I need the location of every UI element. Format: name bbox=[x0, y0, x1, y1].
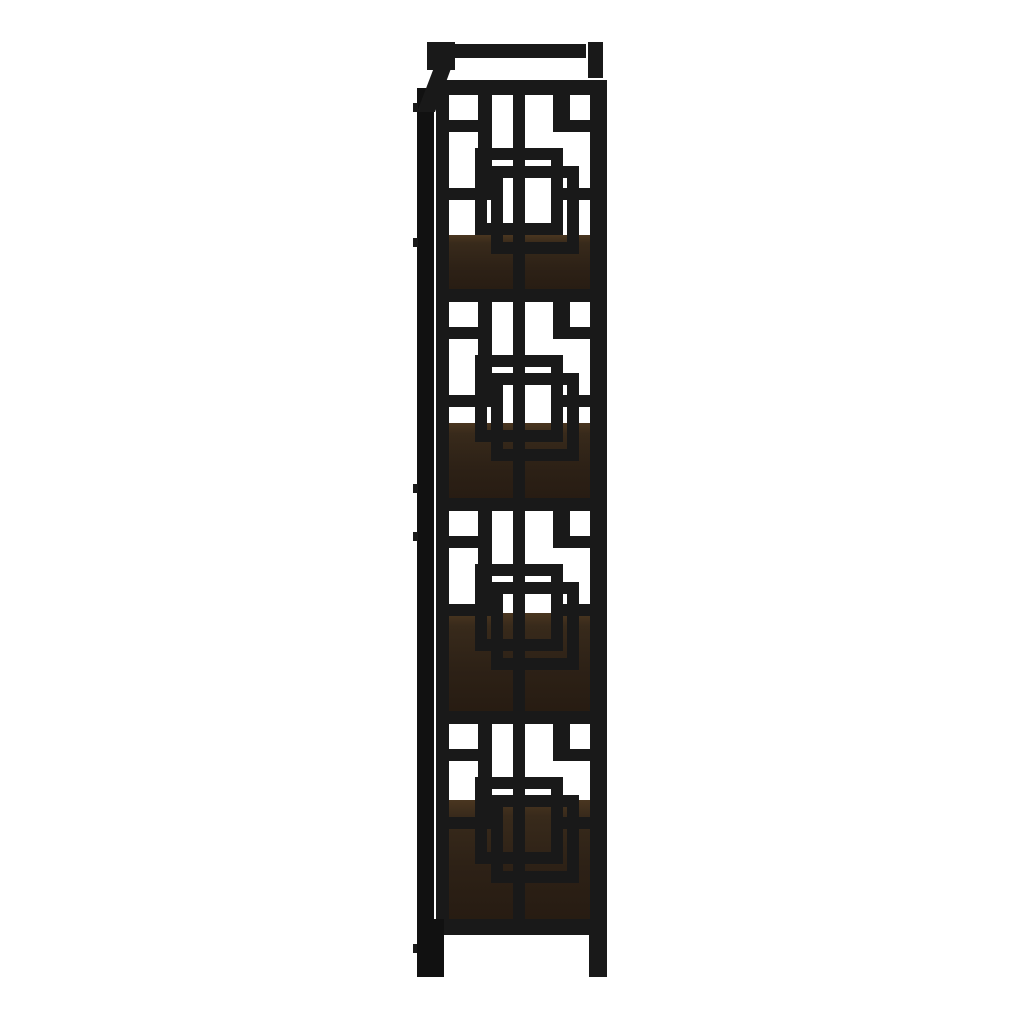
product-photo-canvas bbox=[0, 0, 1024, 1024]
top-right-end-cap bbox=[588, 42, 603, 78]
panel-bottom-rail bbox=[436, 919, 606, 935]
section-rail-1 bbox=[436, 289, 606, 302]
shelf-peg bbox=[413, 238, 418, 247]
shelf-peg bbox=[413, 484, 418, 493]
section-rail-3 bbox=[436, 711, 606, 724]
top-rail bbox=[437, 44, 586, 58]
shelf-peg bbox=[413, 532, 418, 541]
front-leg bbox=[589, 919, 607, 977]
bookcase-product-image bbox=[0, 0, 1024, 1024]
back-post bbox=[417, 88, 434, 977]
back-leg bbox=[417, 919, 444, 977]
shelf-peg bbox=[413, 103, 418, 112]
section-rail-2 bbox=[436, 498, 606, 511]
panel-top-rail bbox=[436, 80, 606, 95]
